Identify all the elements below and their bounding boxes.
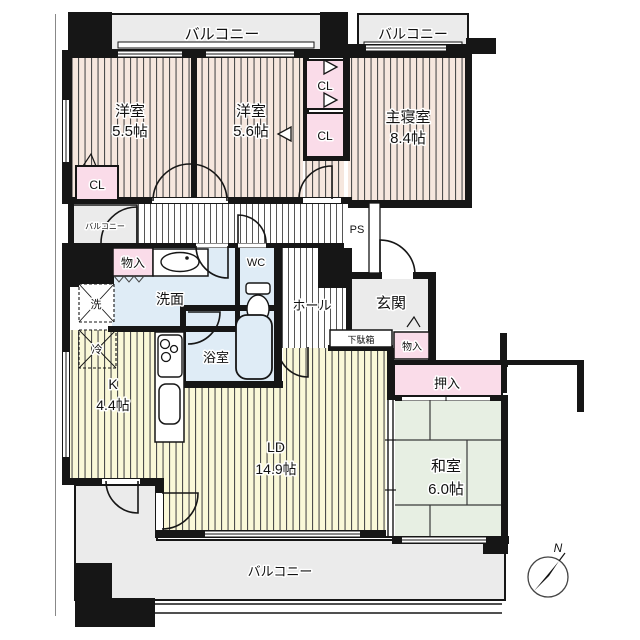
western2-size: 5.6帖 xyxy=(233,123,269,140)
entry-label: 玄関 xyxy=(376,295,406,312)
master-name: 主寝室 xyxy=(385,108,430,126)
monoire-entry-label: 物入 xyxy=(402,340,422,353)
washroom-label: 洗面 xyxy=(156,291,184,307)
balcony-top-left-label: バルコニー xyxy=(185,26,260,43)
sliding-door-ld-japanese xyxy=(385,400,396,536)
room-floor-master-entry xyxy=(305,157,344,202)
compass-north-label: N xyxy=(554,541,563,555)
balcony-bottom-label: バルコニー xyxy=(248,564,313,579)
ps-shaft xyxy=(369,203,380,273)
compass-icon: N xyxy=(528,541,568,597)
room-floor-master xyxy=(348,52,465,202)
japanese-name: 和室 xyxy=(431,458,461,475)
master-size: 8.4帖 xyxy=(390,130,426,147)
door-arc-entry xyxy=(380,240,415,275)
living-name: LD xyxy=(267,439,285,455)
washer-label: 洗 xyxy=(91,298,102,311)
hall-label: ホール xyxy=(292,298,331,313)
closet-left-label: CL xyxy=(89,178,105,192)
faucet-icon xyxy=(185,256,189,260)
kitchen-name: K xyxy=(108,376,118,392)
bath-label: 浴室 xyxy=(203,350,229,365)
monoire-utility-label: 物入 xyxy=(121,256,145,270)
closet-upper-label: CL xyxy=(317,79,333,93)
floor-plan: バルコニー バルコニー 洋室 5.5帖 洋室 5.6帖 主寝室 8.4帖 CL … xyxy=(0,0,640,640)
wc-label: WC xyxy=(247,257,265,269)
western2-name: 洋室 xyxy=(236,103,266,120)
balcony-side-label: バルコニー xyxy=(85,222,125,231)
bathtub-icon xyxy=(236,315,272,379)
toilet-tank-icon xyxy=(246,283,270,294)
balcony-top-right-label: バルコニー xyxy=(378,26,448,42)
western1-name: 洋室 xyxy=(115,103,145,120)
western1-size: 5.5帖 xyxy=(112,123,148,140)
basin-icon xyxy=(161,253,199,272)
kitchen-sink-icon xyxy=(159,384,180,424)
shoe-cabinet-label: 下駄箱 xyxy=(347,334,374,345)
living-size: 14.9帖 xyxy=(255,461,296,477)
kitchen-size: 4.4帖 xyxy=(96,397,129,413)
ps-label: PS xyxy=(350,224,365,236)
oshiire-label: 押入 xyxy=(434,376,460,391)
fridge-label: 冷 xyxy=(92,343,103,356)
floor-plan-drawing: バルコニー バルコニー 洋室 5.5帖 洋室 5.6帖 主寝室 8.4帖 CL … xyxy=(0,0,640,640)
japanese-size: 6.0帖 xyxy=(428,481,464,498)
corridor-floor xyxy=(137,202,344,248)
closet-lower-label: CL xyxy=(317,129,333,143)
